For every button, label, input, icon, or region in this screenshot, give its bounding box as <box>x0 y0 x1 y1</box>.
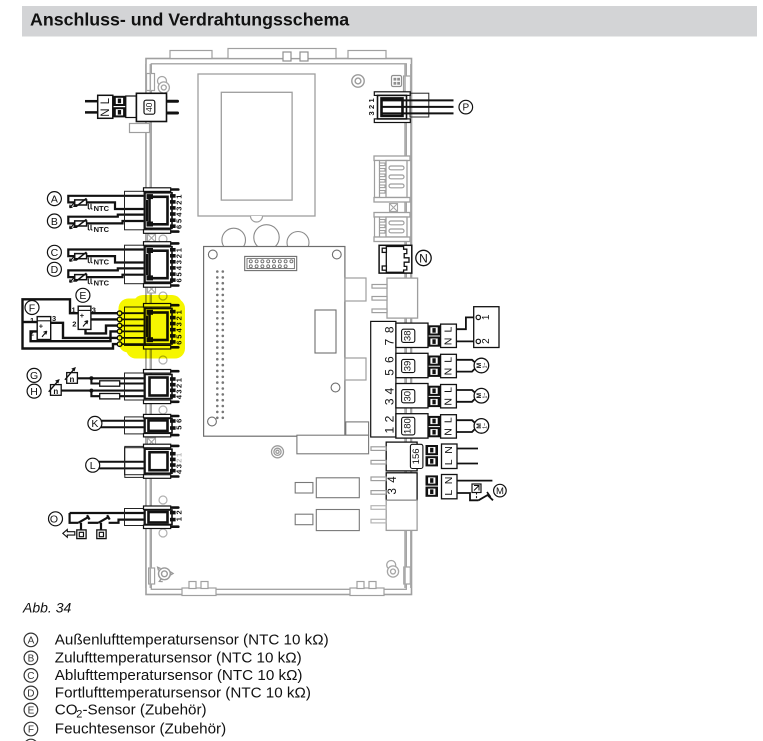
svg-text:C: C <box>51 247 59 259</box>
svg-text:2: 2 <box>174 384 183 388</box>
svg-text:Ablufttemperatursensor (NTC 10: Ablufttemperatursensor (NTC 10 kΩ) <box>55 667 303 684</box>
svg-text:K: K <box>91 418 98 430</box>
svg-text:5: 5 <box>174 426 183 430</box>
svg-text:38: 38 <box>403 331 414 342</box>
svg-text:2: 2 <box>174 459 183 463</box>
svg-text:L: L <box>442 357 454 363</box>
svg-text:Außenlufttemperatursensor (NTC: Außenlufttemperatursensor (NTC 10 kΩ) <box>55 632 329 649</box>
svg-text:7: 7 <box>383 338 397 345</box>
svg-text:A: A <box>51 193 58 205</box>
svg-text:1: 1 <box>174 453 183 457</box>
svg-text:B: B <box>51 216 58 228</box>
svg-text:NTC: NTC <box>94 225 110 234</box>
svg-text:1: 1 <box>367 98 376 102</box>
svg-text:2: 2 <box>174 254 183 258</box>
svg-text:8: 8 <box>383 326 397 333</box>
svg-text:3: 3 <box>367 111 376 115</box>
svg-text:H: H <box>30 386 38 398</box>
svg-text:CO: CO <box>55 702 78 719</box>
svg-text:6: 6 <box>174 225 183 229</box>
svg-text:NTC: NTC <box>94 279 110 288</box>
svg-text:3: 3 <box>174 207 183 211</box>
svg-text:O: O <box>50 513 58 525</box>
svg-text:3: 3 <box>387 488 399 494</box>
svg-text:6: 6 <box>174 278 183 282</box>
svg-text:B: B <box>28 654 35 665</box>
svg-text:n: n <box>70 375 75 384</box>
svg-text:D: D <box>51 264 59 276</box>
svg-text:1: 1 <box>174 517 183 521</box>
svg-text:1: 1 <box>481 314 492 320</box>
svg-text:180: 180 <box>403 418 414 434</box>
svg-text:F: F <box>28 725 34 736</box>
svg-text:40: 40 <box>144 102 154 112</box>
svg-text:L: L <box>90 460 96 472</box>
svg-text:NTC: NTC <box>94 258 110 267</box>
svg-text:5: 5 <box>174 219 183 223</box>
svg-text:NTC: NTC <box>94 204 110 213</box>
svg-text:N: N <box>442 368 454 376</box>
svg-text:5: 5 <box>383 369 397 376</box>
svg-text:2: 2 <box>367 105 376 109</box>
svg-text:Zulufttemperatursensor (NTC 10: Zulufttemperatursensor (NTC 10 kΩ) <box>55 650 302 667</box>
svg-text:2: 2 <box>76 709 82 721</box>
svg-text:D: D <box>27 689 34 700</box>
svg-text:N: N <box>100 108 112 116</box>
svg-text:C: C <box>27 671 34 682</box>
svg-text:-Sensor (Zubehör): -Sensor (Zubehör) <box>83 702 207 719</box>
svg-text:L: L <box>442 387 454 393</box>
svg-text:2: 2 <box>174 201 183 205</box>
svg-text:1: 1 <box>174 248 183 252</box>
svg-text:N: N <box>419 251 428 265</box>
svg-text:F: F <box>29 302 35 314</box>
svg-text:Anschluss- und Verdrahtungssch: Anschluss- und Verdrahtungsschema <box>30 9 349 29</box>
svg-text:2: 2 <box>383 415 397 422</box>
svg-text:+: + <box>80 311 85 320</box>
svg-text:N: N <box>443 477 455 485</box>
svg-text:2: 2 <box>481 338 492 344</box>
svg-text:L: L <box>442 417 454 423</box>
svg-text:A: A <box>28 636 35 647</box>
svg-text:156: 156 <box>411 448 422 464</box>
svg-text:L: L <box>443 490 455 496</box>
svg-text:L: L <box>442 327 454 333</box>
svg-text:4: 4 <box>383 387 397 394</box>
svg-text:G: G <box>30 370 38 382</box>
svg-text:+: + <box>39 322 44 331</box>
svg-text:5: 5 <box>174 272 183 276</box>
svg-text:6: 6 <box>174 419 183 423</box>
svg-text:L: L <box>443 459 455 465</box>
svg-text:3: 3 <box>174 389 183 393</box>
svg-text:1: 1 <box>174 378 183 382</box>
svg-text:1: 1 <box>30 316 34 325</box>
svg-text:Feuchtesensor (Zubehör): Feuchtesensor (Zubehör) <box>55 721 226 738</box>
svg-text:P: P <box>462 103 469 114</box>
svg-text:6: 6 <box>383 356 397 363</box>
svg-text:Abb. 34: Abb. 34 <box>22 599 71 615</box>
svg-text:M: M <box>496 486 504 497</box>
svg-text:2: 2 <box>174 510 183 514</box>
svg-text:L: L <box>100 97 112 104</box>
svg-text:N: N <box>442 398 454 406</box>
svg-text:4: 4 <box>387 476 399 483</box>
svg-text:E: E <box>28 706 35 717</box>
svg-text:n: n <box>53 387 58 396</box>
svg-text:30: 30 <box>403 391 414 402</box>
svg-text:39: 39 <box>403 361 414 372</box>
svg-text:N: N <box>442 338 454 346</box>
svg-text:3: 3 <box>383 398 397 405</box>
svg-text:3: 3 <box>174 260 183 264</box>
svg-text:1: 1 <box>383 427 397 434</box>
svg-text:N: N <box>443 446 455 454</box>
svg-text:E: E <box>79 290 86 302</box>
svg-text:Fortlufttemperatursensor (NTC: Fortlufttemperatursensor (NTC 10 kΩ) <box>55 685 311 702</box>
svg-text:N: N <box>442 428 454 436</box>
svg-text:1: 1 <box>174 195 183 199</box>
svg-text:2: 2 <box>72 320 76 329</box>
svg-text:3: 3 <box>174 464 183 468</box>
